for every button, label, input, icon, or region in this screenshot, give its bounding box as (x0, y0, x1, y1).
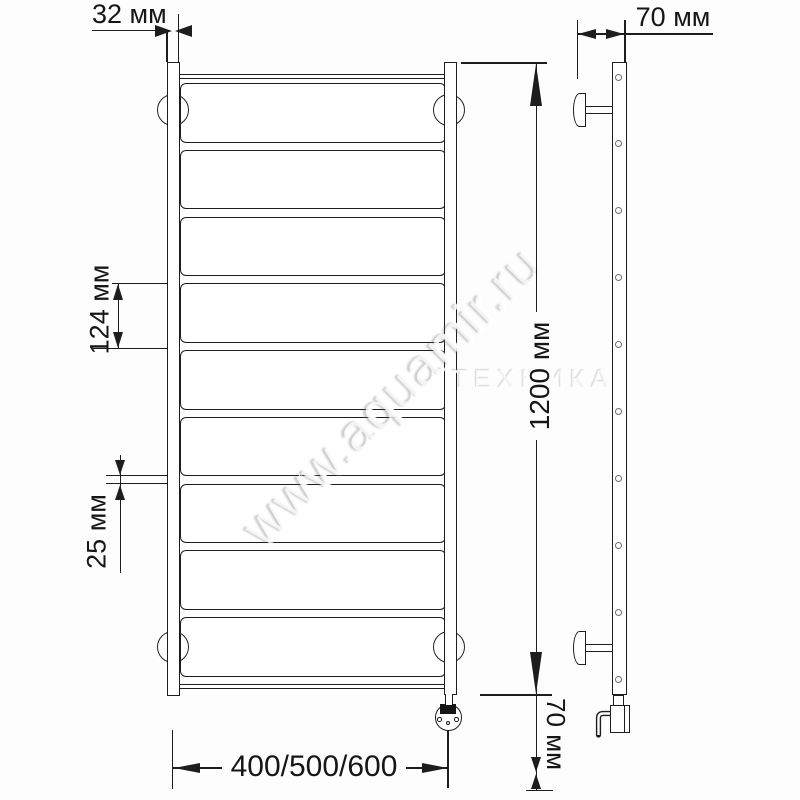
arrowhead (530, 652, 542, 694)
dim-wall-offset-label: 70 мм (631, 4, 715, 31)
wall-bracket-cap (573, 93, 586, 127)
arrowhead (606, 29, 624, 39)
rung (180, 217, 447, 277)
dim-rung-pitch-label: 124 мм (86, 255, 113, 365)
arrowhead (115, 485, 125, 500)
bottom-crossbar (179, 684, 445, 689)
dim-rail-width-label: 32 мм (92, 1, 167, 28)
dim-overall-height-label: 1200 мм (526, 312, 554, 440)
arrowhead (422, 763, 448, 773)
electric-neck (445, 694, 453, 705)
electric-plug-contact (440, 704, 456, 715)
side-element-neck (613, 695, 624, 706)
top-crossbar (179, 74, 445, 79)
arrowhead (578, 29, 596, 39)
arrowhead (113, 332, 123, 348)
arrowhead (531, 774, 541, 789)
towel-rail-dimension-diagram: www.aquamir.ru ТЕХНИКА (0, 0, 800, 800)
mount-hole (615, 74, 622, 81)
power-cable-line (447, 730, 449, 788)
arrowhead (530, 64, 542, 106)
rung (180, 484, 447, 544)
dim-line (577, 33, 713, 35)
housing-inner-line (624, 706, 626, 732)
extension-line (624, 20, 626, 62)
rung (180, 417, 447, 477)
rung (180, 150, 447, 210)
extension-line (106, 475, 167, 477)
wall-bracket-stem (584, 106, 612, 115)
extension-line (166, 30, 168, 62)
rung (180, 83, 447, 143)
dim-rung-gap-label: 25 мм (84, 482, 111, 582)
extension-line (178, 14, 180, 63)
dim-width-options-label: 400/500/600 (222, 752, 406, 782)
plug-pin (437, 717, 442, 722)
arrowhead (531, 757, 541, 772)
rung (180, 617, 447, 677)
arrowhead (174, 763, 200, 773)
rung (180, 550, 447, 610)
left-rail (167, 62, 181, 696)
arrowhead (115, 460, 125, 475)
arrowhead (113, 284, 123, 300)
plug-pin (454, 717, 459, 722)
side-element-housing (610, 705, 631, 733)
extension-line (526, 790, 553, 792)
dim-bottom-offset-label: 70 мм (543, 688, 569, 780)
wall-bracket-stem (584, 644, 612, 653)
extension-line (172, 730, 174, 789)
extension-line (480, 694, 552, 696)
extension-line (577, 20, 579, 79)
wall-bracket-cap (573, 631, 586, 665)
rung (180, 283, 447, 343)
right-rail (444, 62, 457, 695)
side-profile-bar (612, 62, 627, 695)
rung (180, 350, 447, 410)
